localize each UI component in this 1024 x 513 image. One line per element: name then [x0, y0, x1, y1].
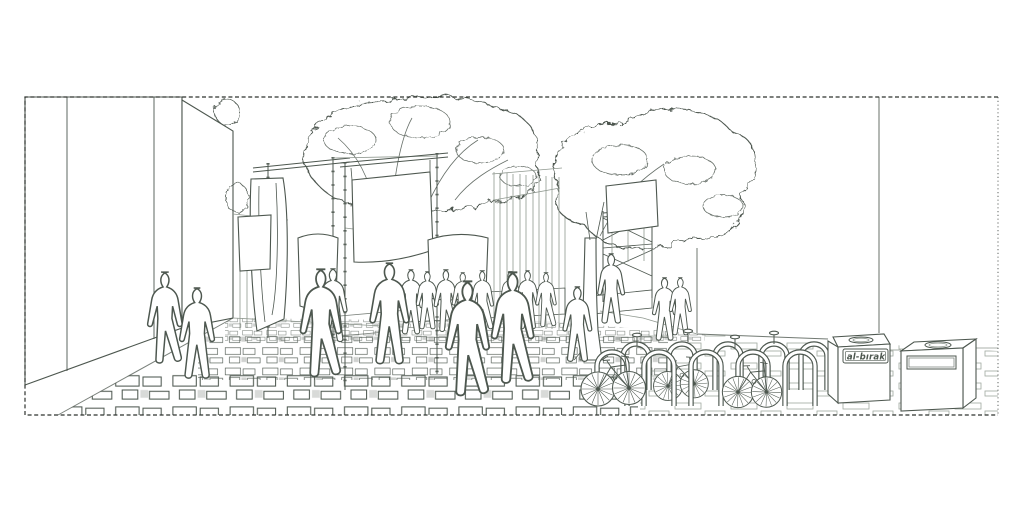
large-banner: [352, 172, 433, 262]
architectural-rendering: al-bırak: [0, 0, 1024, 513]
tree-canopy-right: [554, 109, 756, 250]
donation-box-slot: [901, 339, 976, 411]
illustration-canvas: al-bırak: [0, 0, 1024, 513]
small-banner: [238, 215, 271, 271]
person-silhouette: [669, 278, 691, 335]
box-label: al-bırak: [847, 353, 887, 363]
banner-right: [606, 180, 658, 233]
donation-box-labeled: al-bırak: [828, 334, 890, 403]
